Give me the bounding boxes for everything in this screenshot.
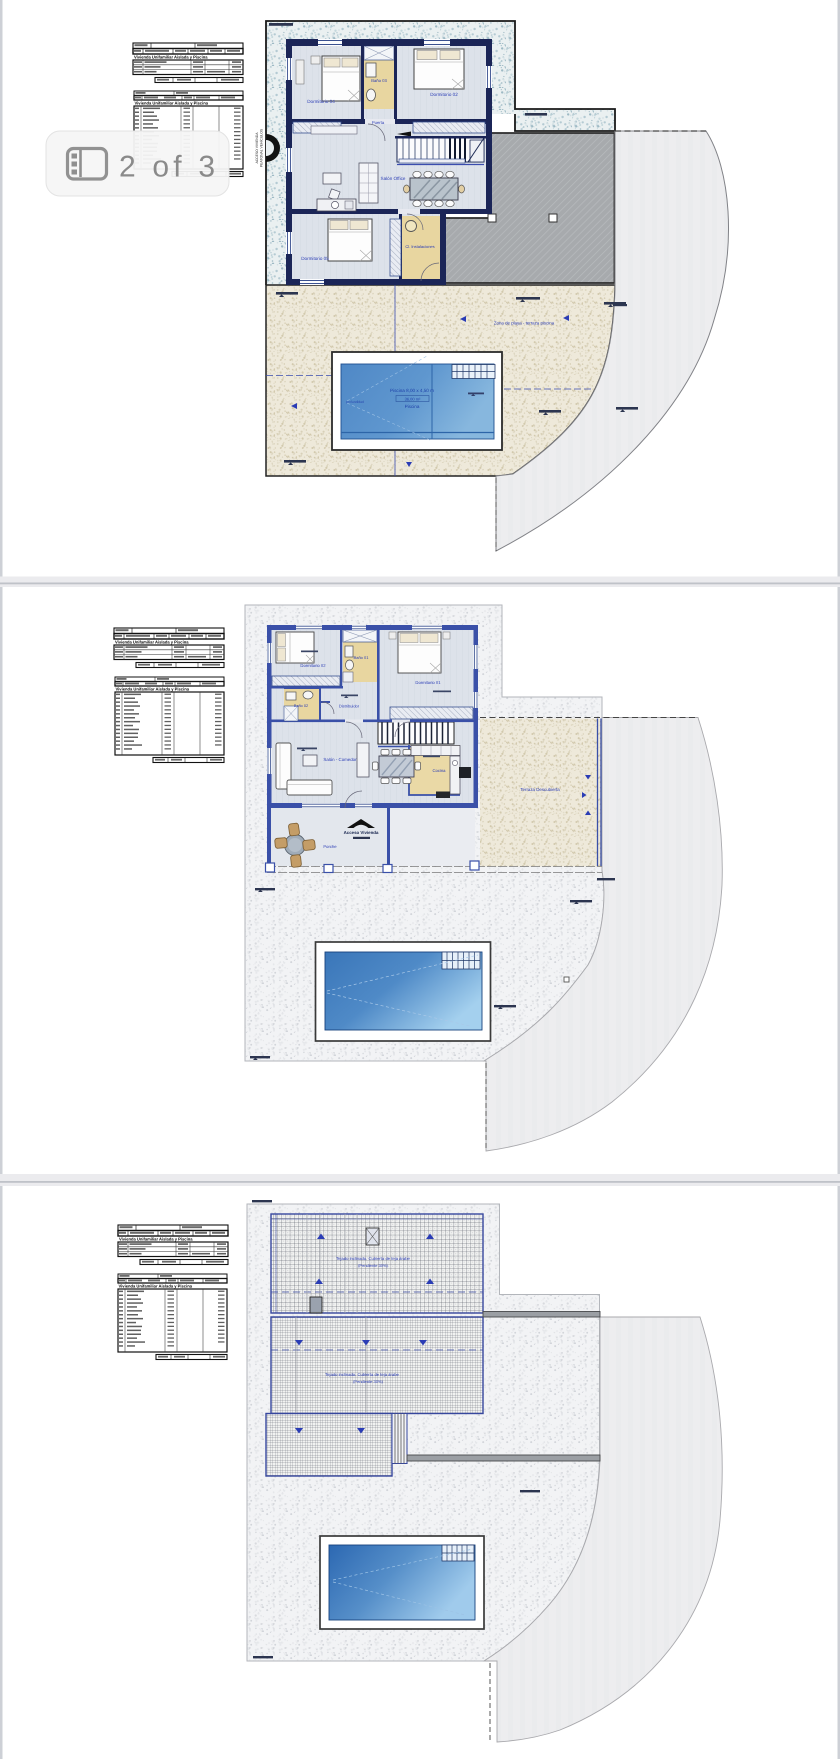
svg-text:ACCESO VIVIENDA: ACCESO VIVIENDA — [255, 132, 259, 164]
svg-text:Zona de playa - terraza piscin: Zona de playa - terraza piscina — [494, 321, 555, 326]
svg-text:Salón Office: Salón Office — [381, 176, 406, 181]
svg-text:Salón - Comedor: Salón - Comedor — [323, 757, 357, 762]
svg-text:Piscina 8,00 x 4,50 m: Piscina 8,00 x 4,50 m — [390, 388, 434, 393]
svg-text:Dormitorio 04: Dormitorio 04 — [307, 99, 335, 104]
svg-text:36,00 m²: 36,00 m² — [405, 396, 421, 401]
svg-text:profundidad: profundidad — [346, 400, 364, 404]
svg-text:Baño 02: Baño 02 — [294, 704, 308, 708]
svg-text:Tejado inclinado. Cubierta de: Tejado inclinado. Cubierta de teja árabe — [325, 1372, 399, 1377]
svg-text:Dormitorio 02: Dormitorio 02 — [430, 92, 458, 97]
svg-text:Cocina: Cocina — [432, 768, 446, 773]
svg-text:Piscina: Piscina — [405, 404, 420, 409]
svg-text:Baño 03: Baño 03 — [371, 78, 387, 83]
svg-text:Acceso Vivienda: Acceso Vivienda — [344, 830, 379, 835]
svg-text:Baño 01: Baño 01 — [354, 655, 370, 660]
svg-text:Tejado inclinado. Cubierta de: Tejado inclinado. Cubierta de teja árabe — [336, 1256, 410, 1261]
svg-text:Dormitorio 05: Dormitorio 05 — [301, 256, 329, 261]
svg-text:Distribuidor: Distribuidor — [339, 704, 360, 709]
svg-text:Porche: Porche — [323, 844, 337, 849]
svg-text:(Pendiente 30%): (Pendiente 30%) — [353, 1379, 383, 1384]
svg-text:PEATONAL VEHÍCULOS: PEATONAL VEHÍCULOS — [260, 128, 264, 167]
svg-text:Dormitorio 01: Dormitorio 01 — [415, 680, 441, 685]
svg-text:Puerta: Puerta — [372, 120, 385, 125]
svg-text:Terraza Descubierta: Terraza Descubierta — [520, 787, 560, 792]
svg-text:Dormitorio 02: Dormitorio 02 — [300, 663, 326, 668]
svg-text:(Pendiente 30%): (Pendiente 30%) — [358, 1263, 388, 1268]
svg-text:2 of 3: 2 of 3 — [119, 151, 219, 184]
svg-text:Cl. Instalaciones: Cl. Instalaciones — [405, 244, 434, 249]
